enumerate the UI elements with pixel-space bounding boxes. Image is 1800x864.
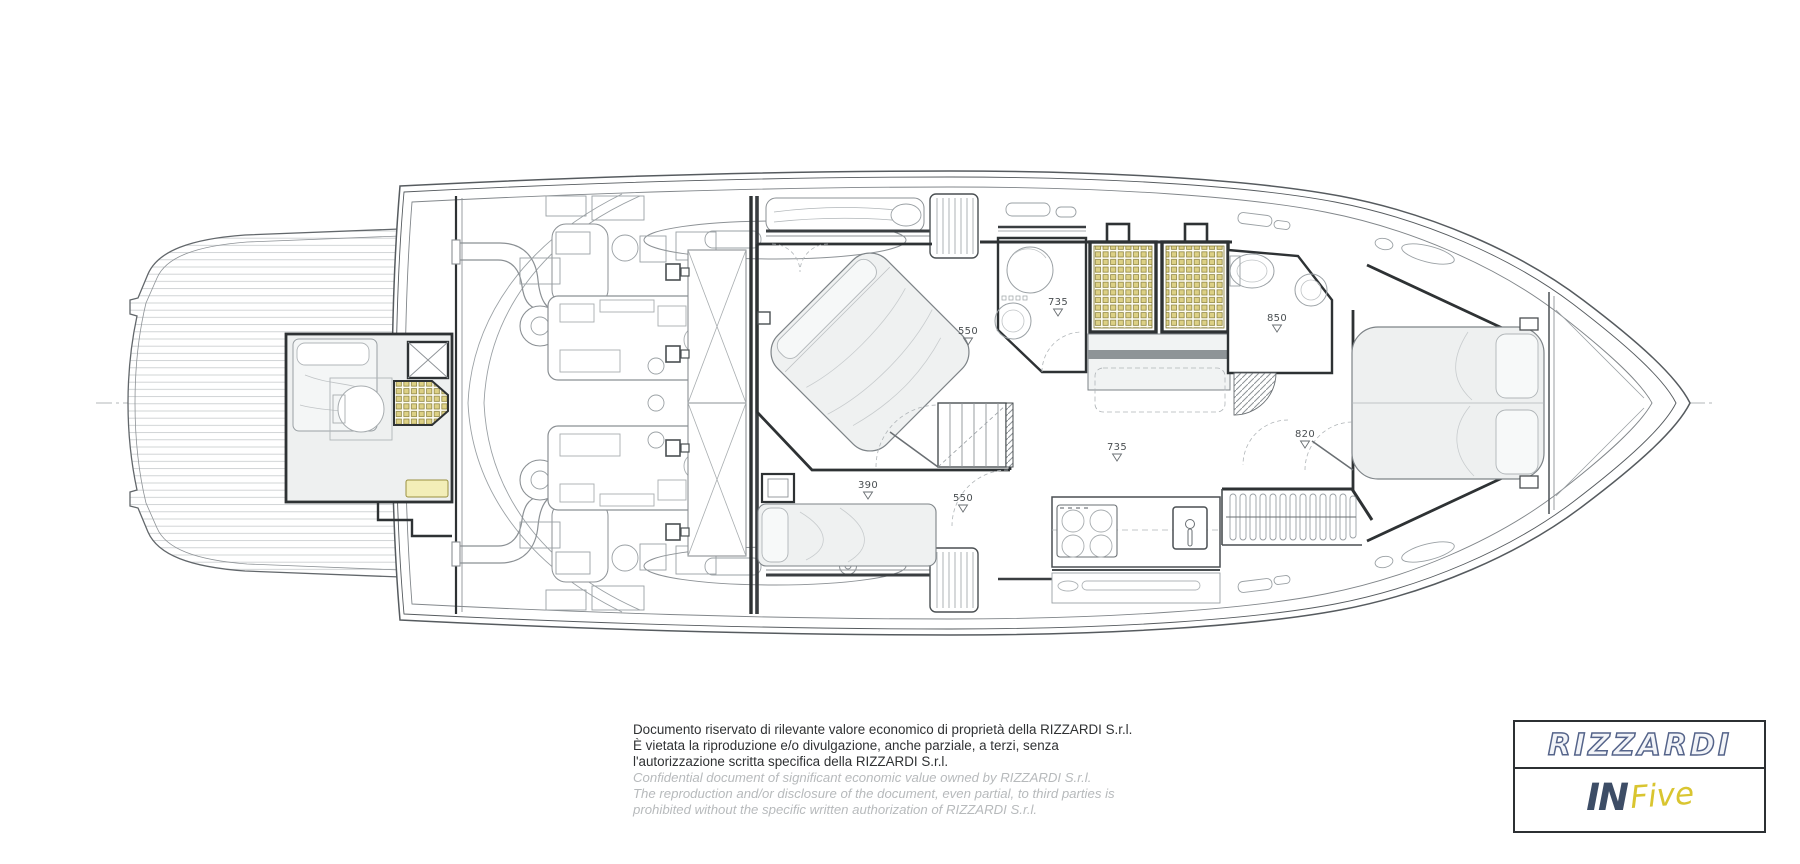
crew-step <box>406 480 448 497</box>
notice-line-italian: l'autorizzazione scritta specifica della… <box>633 754 1233 770</box>
model-name: Five <box>1629 776 1695 816</box>
level-value: 850 <box>1267 313 1287 324</box>
notice-line-english: The reproduction and/or disclosure of th… <box>633 786 1233 802</box>
vip-double-bed <box>1352 327 1544 479</box>
model-prefix: IN <box>1586 776 1629 819</box>
notice-line-english: prohibited without the specific written … <box>633 802 1233 818</box>
galley-sink <box>1173 507 1207 549</box>
yacht-deckplan-sheet: 550 735 850 820 735 390 550 Documento ri… <box>0 0 1800 864</box>
louver-panel <box>930 548 978 612</box>
infive-logo-icon: IN Five <box>1515 769 1764 829</box>
louver-panel <box>930 194 978 258</box>
deck-hatch-cross <box>408 342 448 378</box>
notice-line-italian: È vietata la riproduzione e/o divulgazio… <box>633 738 1233 754</box>
notice-line-italian: Documento riservato di rilevante valore … <box>633 722 1233 738</box>
level-value: 550 <box>958 326 978 337</box>
notice-line-english: Confidential document of significant eco… <box>633 770 1233 786</box>
crew-stair-grating <box>394 381 448 425</box>
level-value: 390 <box>858 480 878 491</box>
level-value: 820 <box>1295 429 1315 440</box>
cabin-stairs <box>938 403 1013 467</box>
shipyard-logo: RIZZARDI <box>1515 722 1764 769</box>
galley <box>1052 497 1220 603</box>
brand-name: RIZZARDI <box>1548 728 1732 763</box>
rizzardi-logo-icon: RIZZARDI <box>1515 722 1764 767</box>
level-value: 735 <box>1107 442 1127 453</box>
fuel-tank-frame <box>688 250 746 556</box>
confidentiality-notice: Documento riservato di rilevante valore … <box>633 722 1233 818</box>
level-value: 550 <box>953 493 973 504</box>
title-block: RIZZARDI IN Five <box>1513 720 1766 833</box>
level-value: 735 <box>1048 297 1068 308</box>
model-logo: IN Five <box>1515 769 1764 831</box>
cooktop <box>1057 505 1117 557</box>
